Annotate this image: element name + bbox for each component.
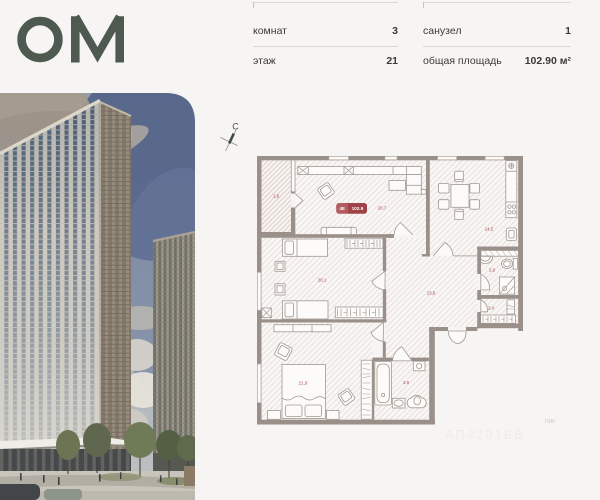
svg-text:13,9: 13,9: [427, 291, 436, 296]
svg-text:21,9: 21,9: [299, 381, 308, 386]
svg-text:2,9: 2,9: [489, 268, 496, 273]
svg-text:20,1: 20,1: [318, 278, 327, 283]
svg-text:102.9: 102.9: [352, 206, 364, 211]
svg-text:4Е: 4Е: [339, 206, 345, 211]
svg-text:3,9: 3,9: [403, 380, 410, 385]
svg-text:2,4: 2,4: [488, 306, 495, 311]
svg-text:1,6: 1,6: [273, 194, 280, 199]
svg-text:14,5: 14,5: [485, 227, 494, 232]
svg-text:20,7: 20,7: [378, 206, 387, 211]
